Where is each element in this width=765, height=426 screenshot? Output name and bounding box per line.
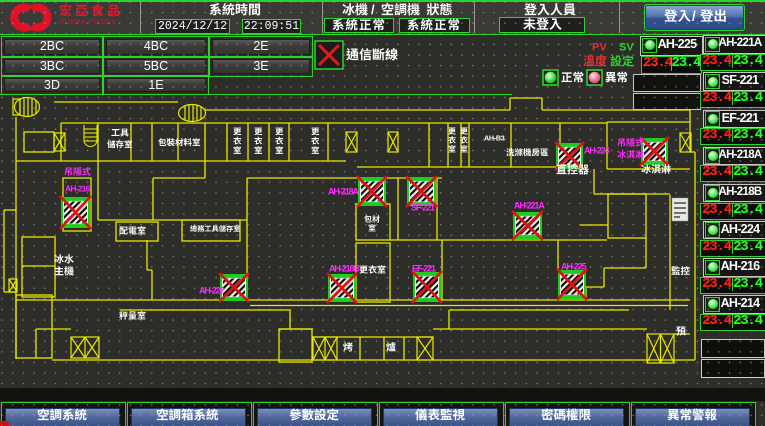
svg-text:AH-218A: AH-218A xyxy=(328,187,359,197)
svg-text:/: / xyxy=(692,9,696,24)
svg-text:/: / xyxy=(371,2,375,17)
svg-text:AH-B3: AH-B3 xyxy=(484,134,505,143)
svg-text:EF-221: EF-221 xyxy=(412,264,436,274)
svg-text:AH-216: AH-216 xyxy=(65,183,91,193)
svg-text:AH-222: AH-222 xyxy=(199,286,225,296)
svg-text:AH-221A: AH-221A xyxy=(514,201,545,211)
svg-text:SF-221: SF-221 xyxy=(411,203,435,213)
svg-text:SV: SV xyxy=(619,41,634,53)
svg-text:AH-218B: AH-218B xyxy=(329,264,360,274)
svg-text:AH-224: AH-224 xyxy=(584,146,610,156)
svg-text:PV: PV xyxy=(592,41,607,53)
svg-text:AH-225: AH-225 xyxy=(561,262,587,272)
